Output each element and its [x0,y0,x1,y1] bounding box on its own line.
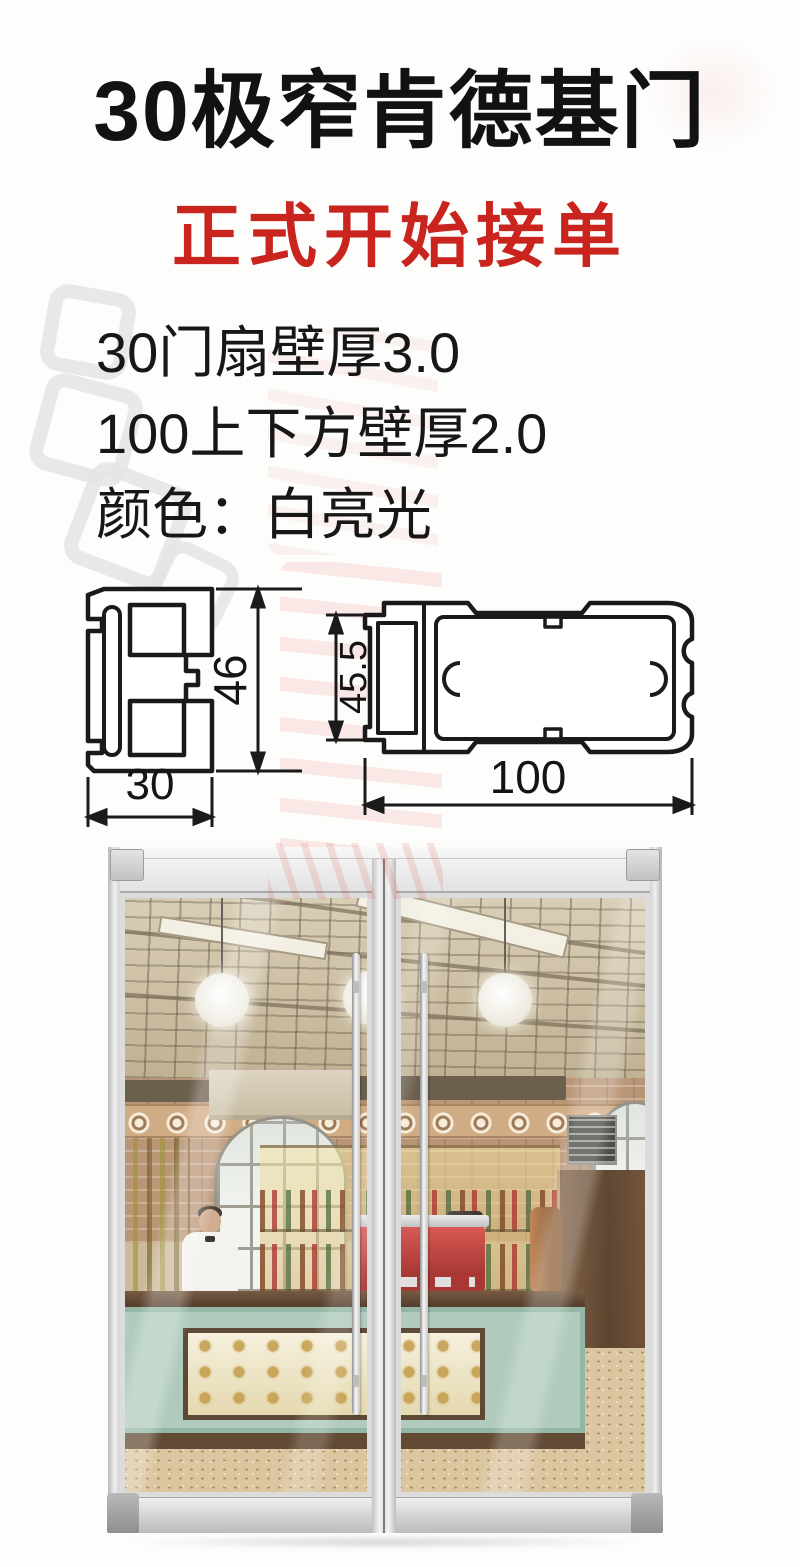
door-frame-left [108,847,120,1533]
sash-width-dimension: 30 [126,760,175,809]
door-shadow [118,1535,652,1549]
pendant-globe-light [478,973,532,1027]
copper-machine [530,1207,562,1293]
air-vent-louver [567,1115,617,1165]
roller-blind [209,1070,352,1120]
tube-width-dimension: 100 [490,751,567,803]
door-meeting-stiles [372,859,396,1533]
pastry-display-window [183,1328,485,1420]
product-flyer: 30极窄肯德基门 正式开始接单 30门扇壁厚3.0 100上下方壁厚2.0 颜色… [0,0,800,1567]
page-title: 30极窄肯德基门 [0,44,800,165]
tube-profile-diagram: 45.5 100 [320,575,720,843]
sash-profile-diagram: 46 30 [70,575,310,843]
spec-tube-thickness: 100上下方壁厚2.0 [96,393,547,474]
barista [179,1209,241,1297]
door-handle-left [352,953,360,1415]
barista-head [199,1209,221,1234]
spec-sash-thickness: 30门扇壁厚3.0 [96,312,547,393]
spec-color: 颜色：白亮光 [96,474,547,555]
order-open-banner: 正式开始接单 [0,180,800,280]
pendant-globe-light [195,973,249,1027]
spec-list: 30门扇壁厚3.0 100上下方壁厚2.0 颜色：白亮光 [96,312,547,555]
tube-height-dimension: 45.5 [333,640,375,714]
kick-plate-right [396,1497,650,1533]
top-pivot-hinge-left [110,849,144,881]
top-pivot-hinge-right [626,849,660,881]
door-handle-right [420,953,428,1415]
pendant-cord [369,893,371,973]
kick-plate-left [120,1497,372,1533]
door-frame-right [650,847,662,1533]
wall-lintel [120,1080,220,1102]
floor-pivot-left [107,1493,139,1533]
pendant-cord [221,893,223,975]
floor-pivot-right [631,1493,663,1533]
sash-height-dimension: 46 [204,654,256,705]
sash-profile-outline [88,589,212,771]
counter-base [120,1433,585,1449]
pendant-cord [504,893,506,977]
door-photo [108,847,662,1533]
barista-bowtie [205,1236,215,1242]
